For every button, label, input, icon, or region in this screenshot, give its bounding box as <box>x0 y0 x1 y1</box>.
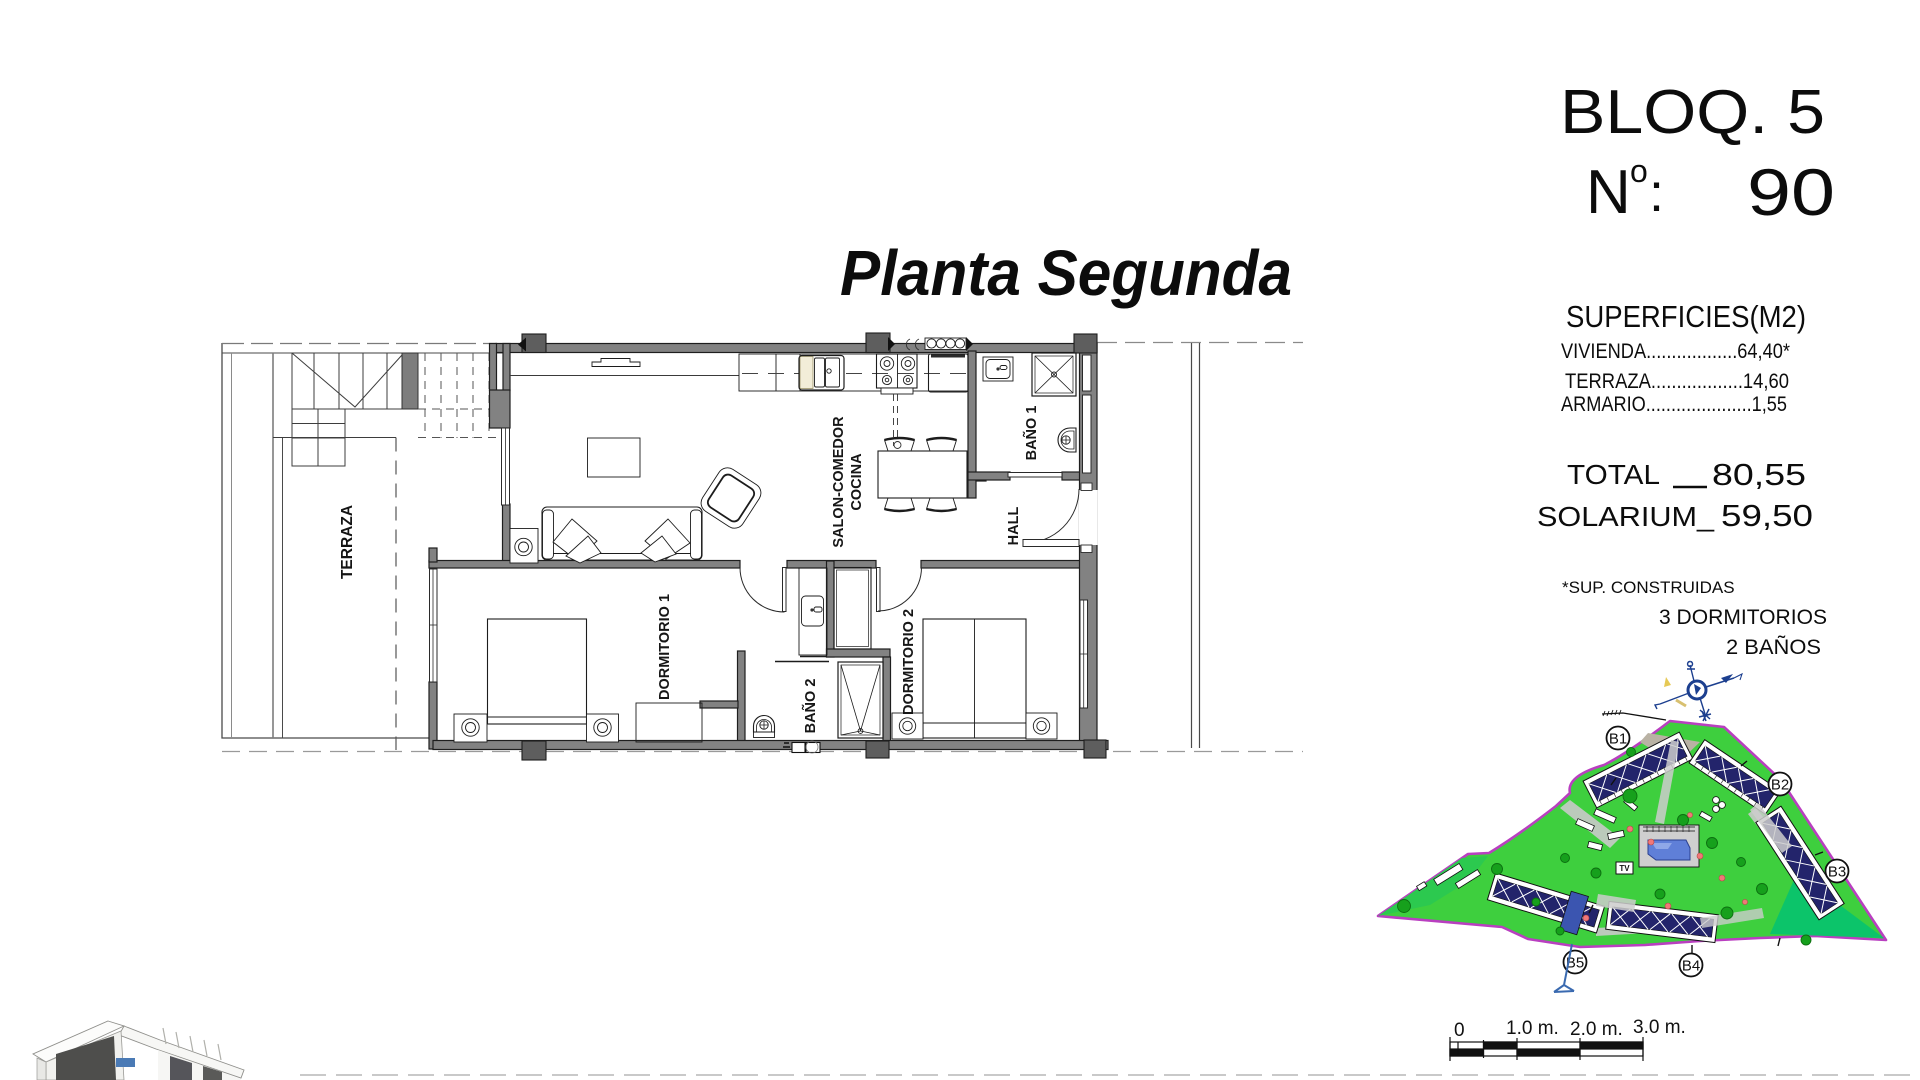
svg-text:HALL: HALL <box>1006 507 1022 546</box>
svg-text:TOTAL: TOTAL <box>1567 459 1660 490</box>
svg-text:BAÑO 2: BAÑO 2 <box>801 679 819 734</box>
svg-text:90: 90 <box>1747 155 1835 229</box>
svg-text:TERRAZA..................14,60: TERRAZA..................14,60 <box>1565 370 1789 393</box>
svg-text:2 BAÑOS: 2 BAÑOS <box>1726 635 1821 659</box>
svg-text:B3: B3 <box>1828 864 1846 881</box>
svg-text:*SUP. CONSTRUIDAS: *SUP. CONSTRUIDAS <box>1562 578 1735 597</box>
svg-text:2.0 m.: 2.0 m. <box>1570 1019 1623 1040</box>
svg-text:3.0 m.: 3.0 m. <box>1633 1017 1686 1038</box>
svg-text:DORMITORIO 1: DORMITORIO 1 <box>657 594 673 700</box>
svg-text:Planta Segunda: Planta Segunda <box>840 237 1292 309</box>
svg-text:BLOQ. 5: BLOQ. 5 <box>1560 78 1825 147</box>
svg-text:B4: B4 <box>1682 958 1700 975</box>
svg-text:SUPERFICIES(M2): SUPERFICIES(M2) <box>1566 299 1806 334</box>
svg-text::: : <box>1649 163 1664 223</box>
svg-text:80,55: 80,55 <box>1712 457 1806 492</box>
svg-text:SALON-COMEDOR: SALON-COMEDOR <box>831 416 847 548</box>
svg-text:ARMARIO.....................1,: ARMARIO.....................1,55 <box>1561 393 1787 416</box>
svg-text:SOLARIUM_: SOLARIUM_ <box>1537 501 1714 532</box>
svg-text:N: N <box>1586 158 1631 227</box>
svg-text:1.0 m.: 1.0 m. <box>1506 1018 1559 1039</box>
svg-text:3 DORMITORIOS: 3 DORMITORIOS <box>1659 606 1827 629</box>
svg-text:TERRAZA: TERRAZA <box>339 505 356 579</box>
svg-text:0: 0 <box>1454 1020 1465 1041</box>
svg-text:B1: B1 <box>1609 731 1627 748</box>
svg-text:59,50: 59,50 <box>1721 498 1813 533</box>
svg-text:COCINA: COCINA <box>849 453 865 511</box>
svg-text:DORMITORIO 2: DORMITORIO 2 <box>901 609 917 715</box>
svg-text:TV: TV <box>1619 864 1630 873</box>
svg-text:o: o <box>1630 153 1648 189</box>
svg-text:B2: B2 <box>1771 777 1789 794</box>
svg-text:VIVIENDA..................64,4: VIVIENDA..................64,40* <box>1561 340 1790 363</box>
svg-text:BAÑO 1: BAÑO 1 <box>1022 406 1040 461</box>
